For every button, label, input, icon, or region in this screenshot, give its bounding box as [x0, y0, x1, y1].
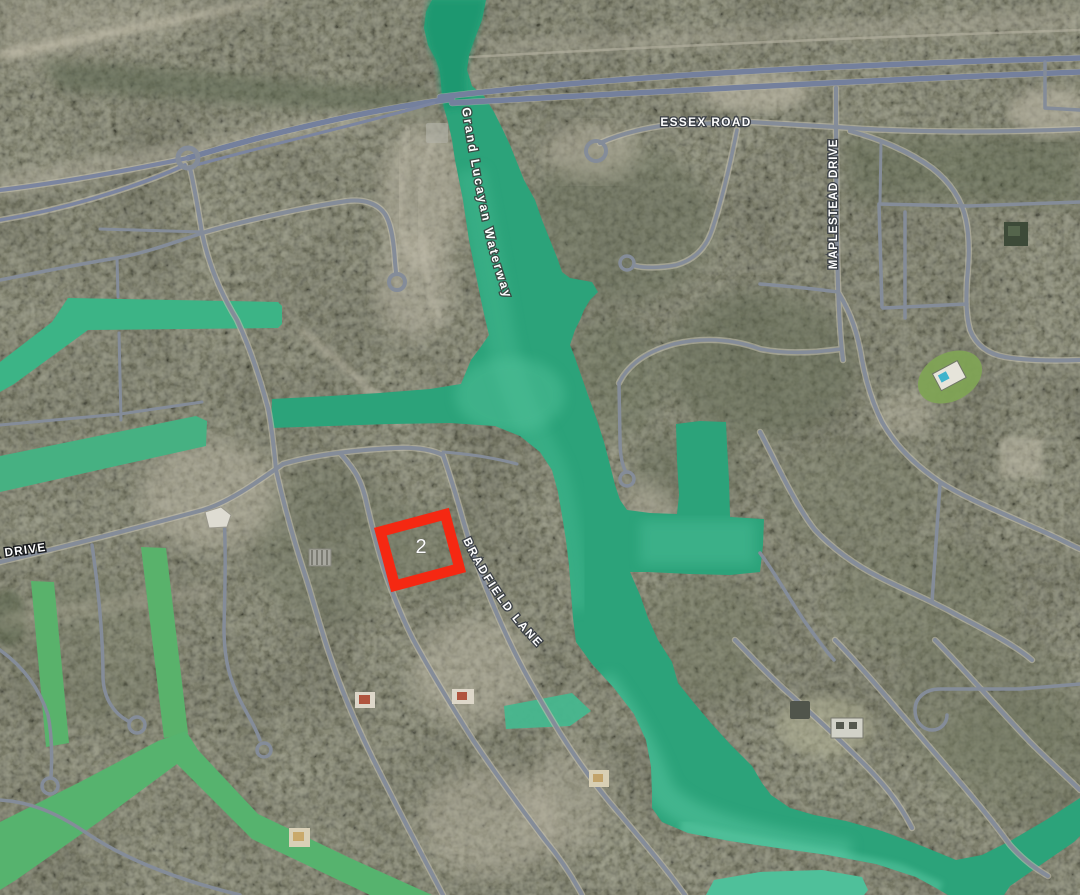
svg-text:ESSEX ROAD: ESSEX ROAD	[660, 115, 751, 129]
svg-text:2: 2	[415, 536, 426, 558]
svg-text:MAPLESTEAD DRIVE: MAPLESTEAD DRIVE	[828, 139, 840, 269]
